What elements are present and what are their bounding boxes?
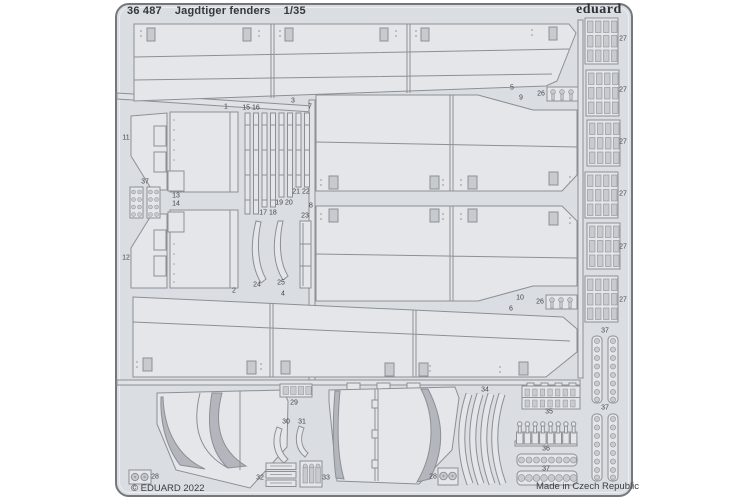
catalog-number: 36 487	[127, 5, 162, 17]
product-sheet-image: 36 487 Jagdtiger fenders 1/35 eduard © E…	[0, 0, 750, 500]
clamp-strip-26-bottom	[546, 295, 577, 309]
ring-plate-28-right	[438, 468, 458, 485]
side-fender-part-11	[131, 112, 238, 192]
clamp-strip-26-top	[547, 87, 578, 101]
strip-part-23	[300, 221, 311, 288]
pe-fret-graphic	[0, 0, 750, 500]
scale: 1/35	[284, 5, 306, 17]
ring-plate-28-left	[129, 470, 151, 484]
bullet-cluster-33	[300, 461, 322, 487]
side-fender-part-12	[131, 210, 238, 288]
square-strip-29	[280, 384, 312, 397]
copyright-text: © EDUARD 2022	[131, 483, 205, 494]
slat-ladder-35	[522, 383, 580, 409]
product-title: Jagdtiger fenders	[175, 5, 271, 17]
eduard-logo: eduard	[576, 2, 622, 18]
bar-strips-32	[266, 463, 296, 487]
origin-text: Made in Czech Republic	[536, 481, 639, 492]
sheet-header: 36 487 Jagdtiger fenders 1/35	[127, 5, 306, 17]
